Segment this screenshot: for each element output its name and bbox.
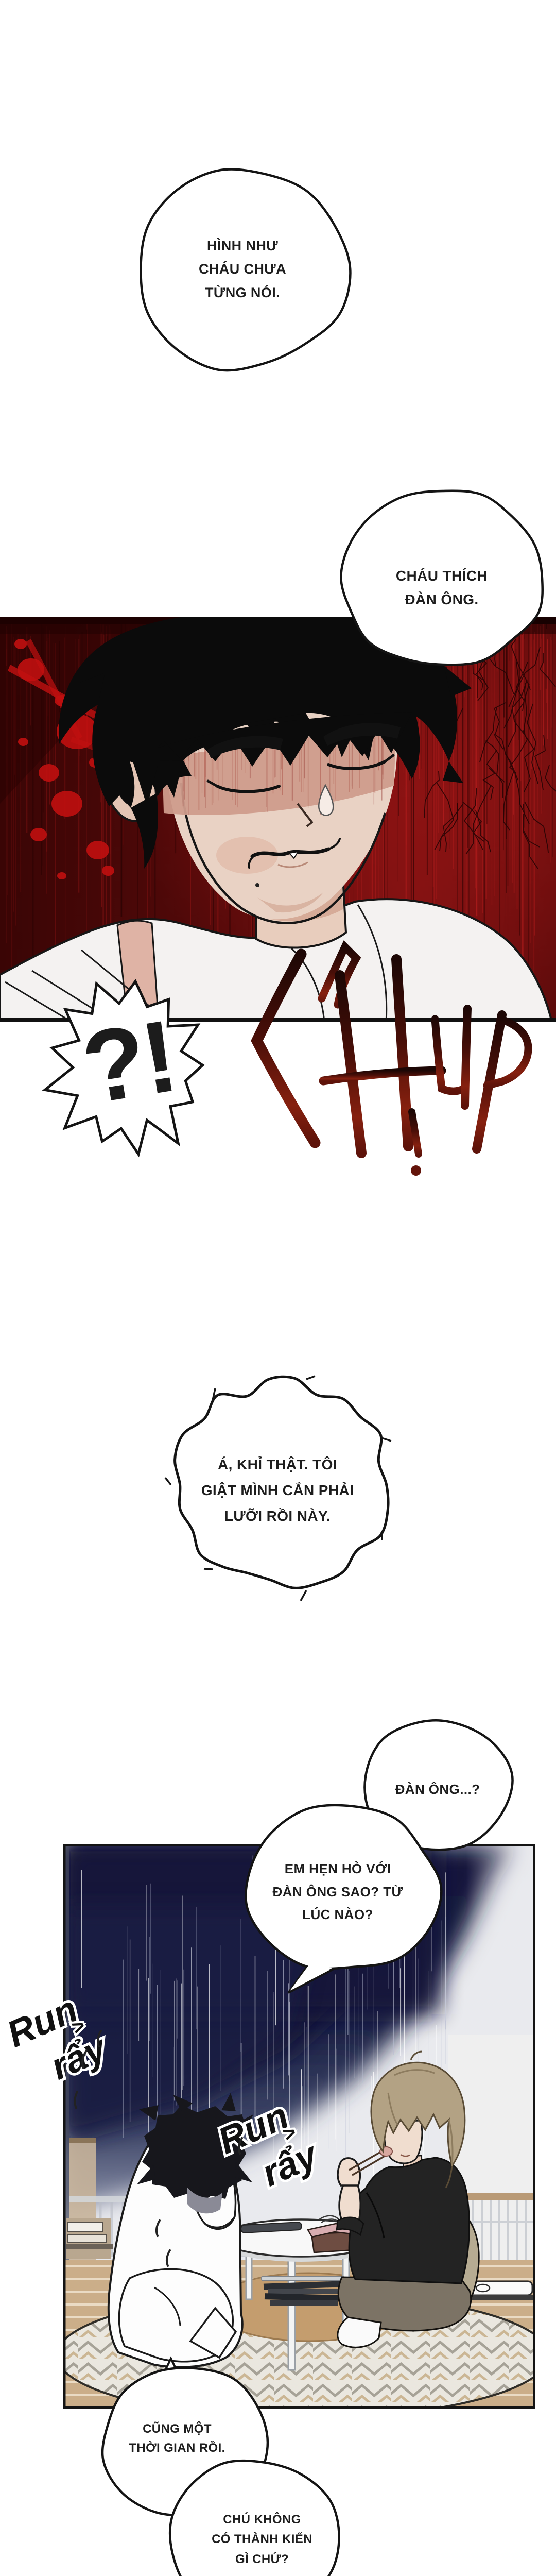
svg-text:?!: ?! bbox=[75, 998, 182, 1125]
